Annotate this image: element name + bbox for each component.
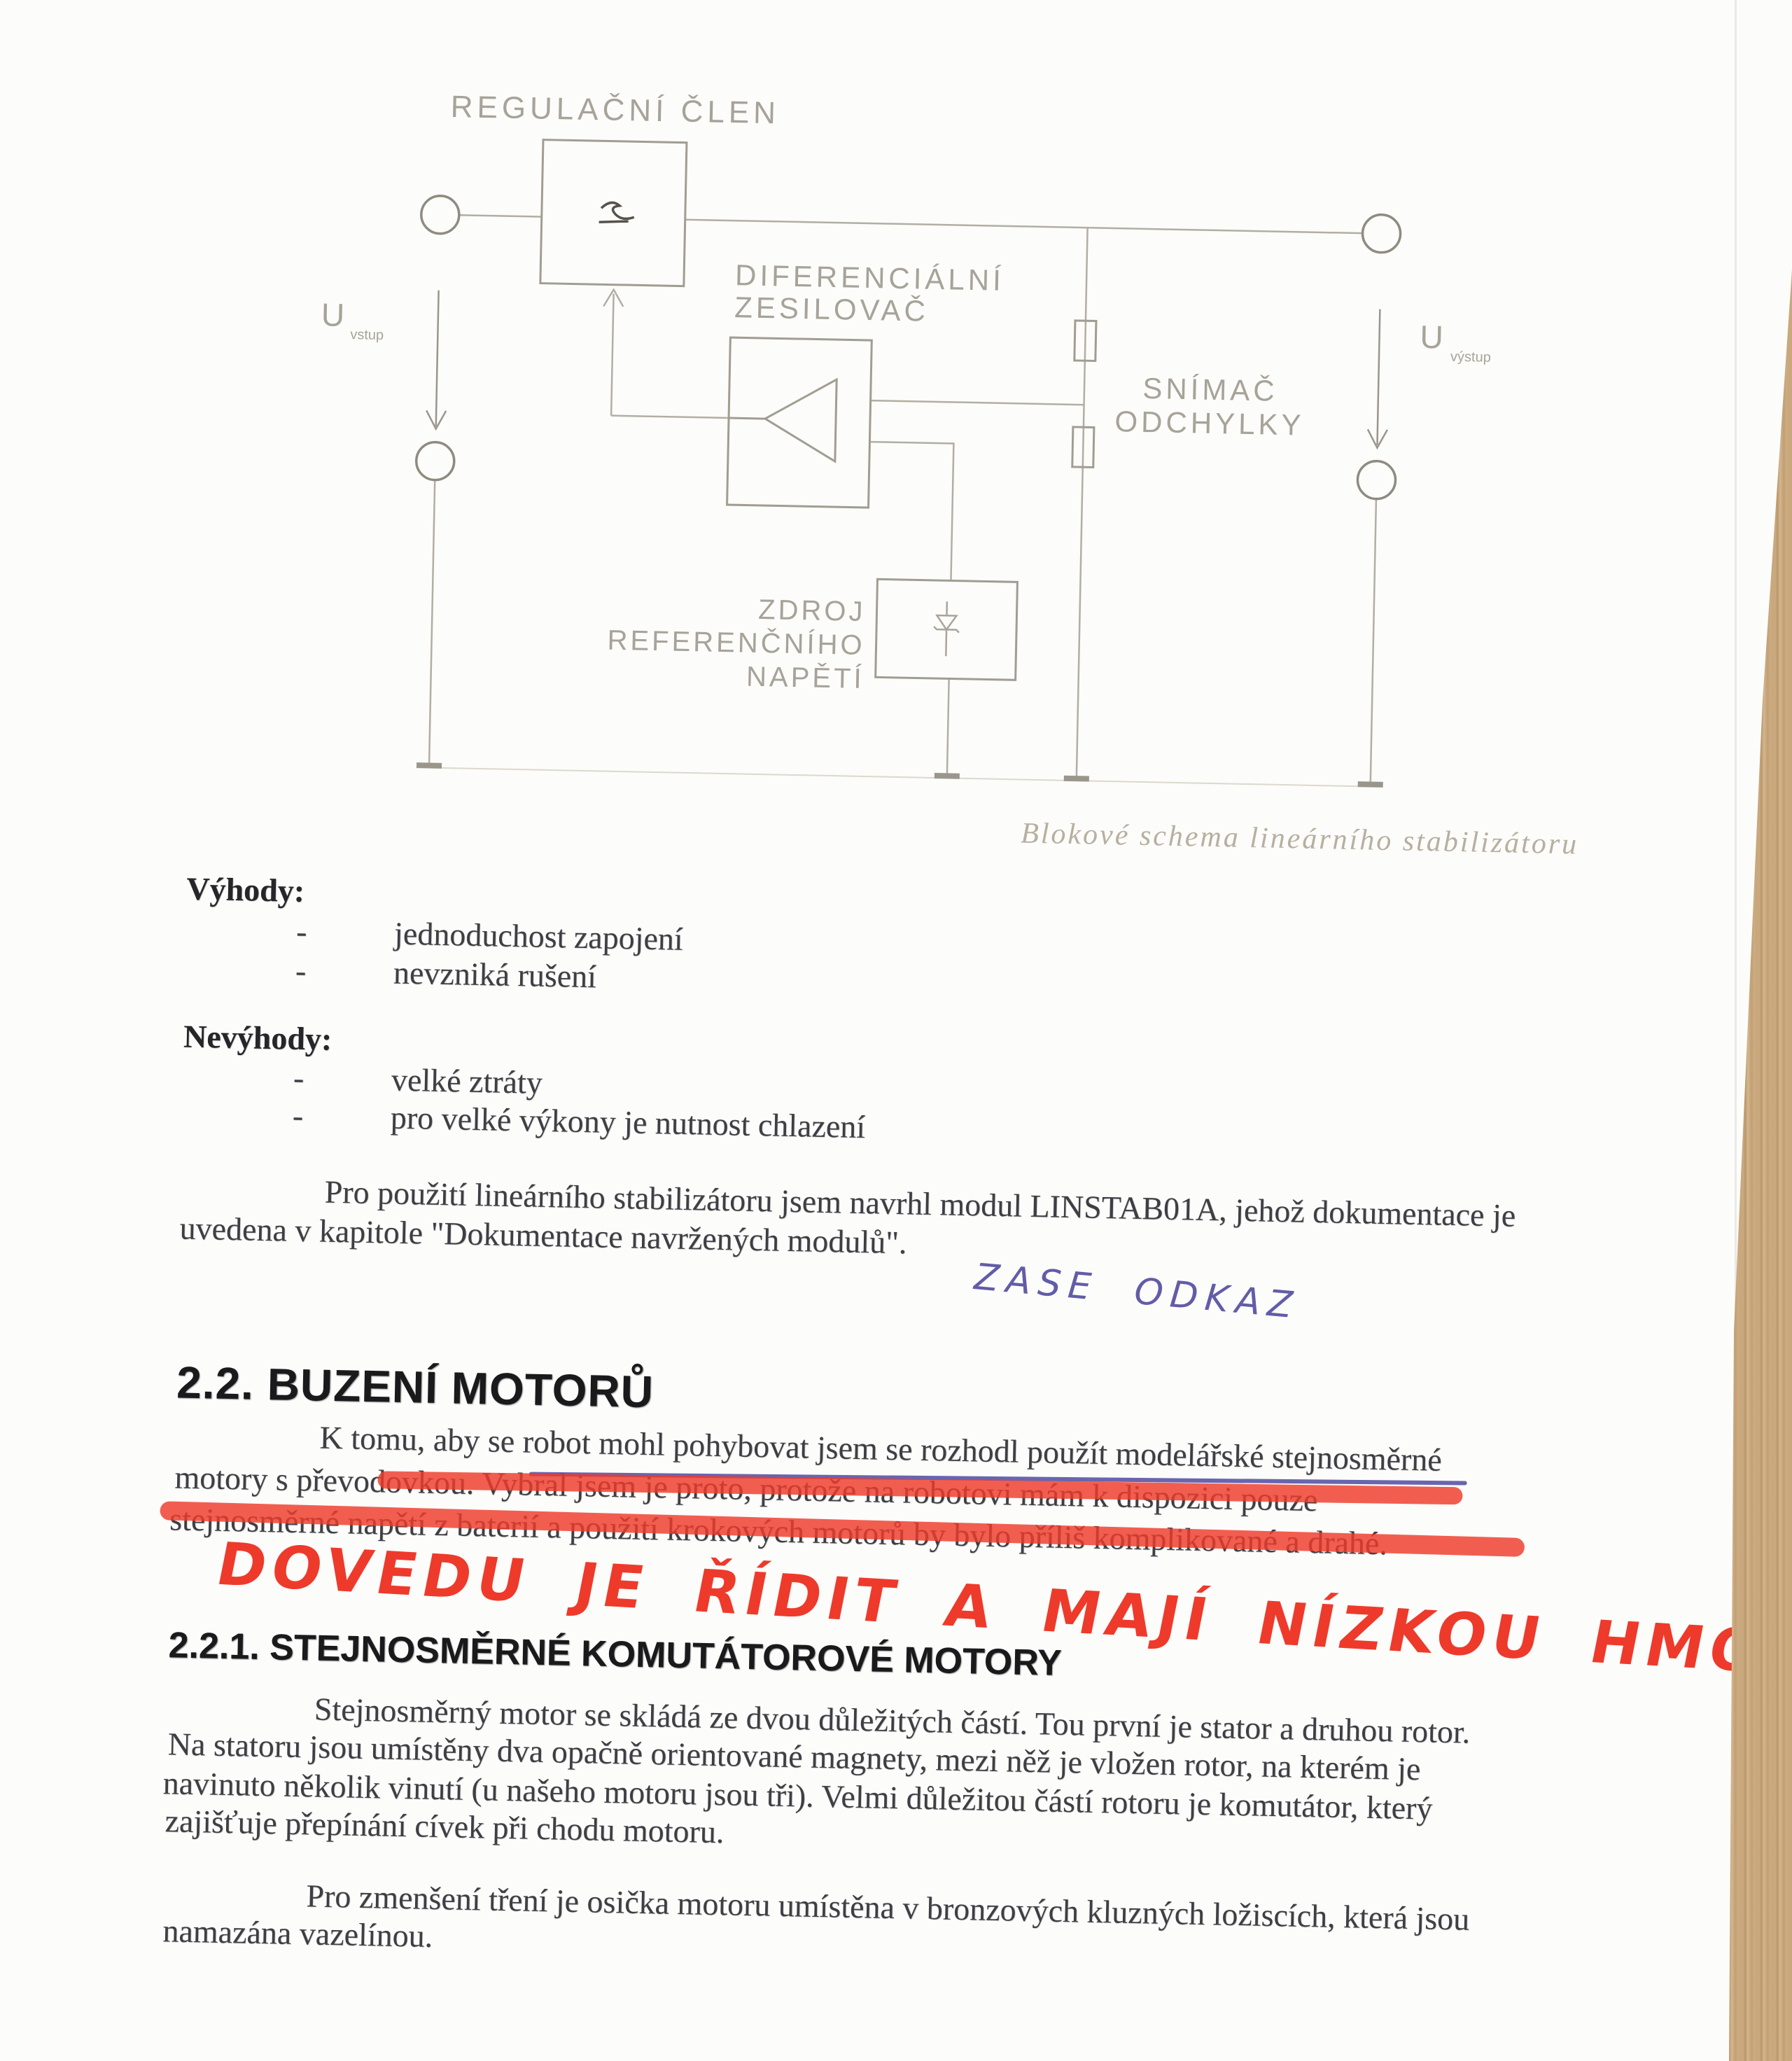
u-in-arrow [436, 291, 439, 426]
disadvantages-title: Nevýhody: [183, 1021, 332, 1056]
u-in-subscript: vstup [350, 327, 384, 343]
u-out-arrow [1377, 309, 1380, 445]
wire-amp-output [611, 416, 729, 418]
sensor-label-line2: ODCHYLKY [1114, 405, 1305, 441]
paragraph-linstab-line: uvedena v kapitole "Dokumentace navržený… [179, 1213, 907, 1259]
wire-divider [1077, 228, 1088, 778]
sensor-label-line1: SNÍMAČ [1142, 372, 1278, 407]
output-terminal-bottom [1357, 461, 1396, 499]
advantages-title: Výhody: [186, 873, 305, 907]
input-terminal-bottom [416, 442, 454, 480]
zener-diode-icon [933, 601, 960, 657]
advantage-item: -jednoduchost zapojení [296, 916, 683, 956]
wire-reference-ground [947, 678, 949, 775]
input-terminal-top [421, 195, 459, 234]
page-content: REGULAČNÍ ČLEN DIFERENCIÁLNÍ ZESILOVAČ S… [0, 0, 1792, 2061]
regulator-label: REGULAČNÍ ČLEN [450, 89, 780, 130]
amp-output-stub [729, 418, 765, 419]
scanned-page: REGULAČNÍ ČLEN DIFERENCIÁLNÍ ZESILOVAČ S… [0, 0, 1792, 2061]
wire-output-rail [685, 220, 1363, 233]
disadvantage-item: -velké ztráty [293, 1062, 543, 1099]
output-terminal-top [1362, 214, 1401, 253]
disadvantage-text: velké ztráty [391, 1062, 542, 1101]
advantage-item: -nevzniká rušení [295, 955, 597, 993]
paragraph-bearings-line: namazána vazelínou. [162, 1915, 433, 1952]
u-out-label: U [1420, 319, 1443, 356]
reference-label-line1: ZDROJ [758, 594, 866, 627]
advantage-text: jednoduchost zapojení [394, 916, 684, 957]
disadvantage-item: -pro velké výkony je nutnost chlazení [292, 1100, 865, 1143]
bullet-dash: - [295, 955, 394, 989]
amplifier-label-line2: ZESILOVAČ [734, 291, 930, 328]
bullet-dash: - [292, 1100, 391, 1134]
section-heading-2-2: 2.2. BUZENÍ MOTORŮ [176, 1360, 654, 1414]
paragraph-dc-line: zajišťuje přepínání cívek při chodu moto… [164, 1805, 724, 1848]
wire-left-ground [429, 480, 435, 765]
figure-caption: Blokové schema lineárního stabilizátoru [1021, 819, 1579, 860]
amplifier-box [727, 337, 872, 508]
paper-crease [1735, 0, 1737, 1334]
wire-input [459, 215, 542, 216]
bullet-dash: - [293, 1062, 392, 1096]
amplifier-triangle-icon [764, 378, 836, 461]
advantage-text: nevzniká rušení [393, 955, 597, 995]
u-out-subscript: výstup [1450, 349, 1491, 365]
reference-label-line3: NAPĚTÍ [746, 661, 864, 694]
block-diagram: REGULAČNÍ ČLEN DIFERENCIÁLNÍ ZESILOVAČ S… [271, 64, 1545, 811]
wire-feedback [611, 294, 613, 416]
u-in-label: U [321, 296, 344, 333]
wire-bottom-rail [429, 768, 1371, 787]
bullet-dash: - [296, 916, 395, 950]
transistor-icon [599, 202, 635, 223]
disadvantage-text: pro velké výkony je nutnost chlazení [390, 1100, 865, 1145]
wire-reference [867, 442, 953, 580]
reference-label-line2: REFERENČNÍHO [607, 624, 865, 661]
paragraph-bearings-line: Pro zmenšení tření je osička motoru umís… [306, 1880, 1470, 1935]
wire-divider-tap [871, 400, 1084, 405]
wire-right-ground [1371, 499, 1376, 784]
blue-pen-note: ZASE ODKAZ [973, 1259, 1301, 1325]
